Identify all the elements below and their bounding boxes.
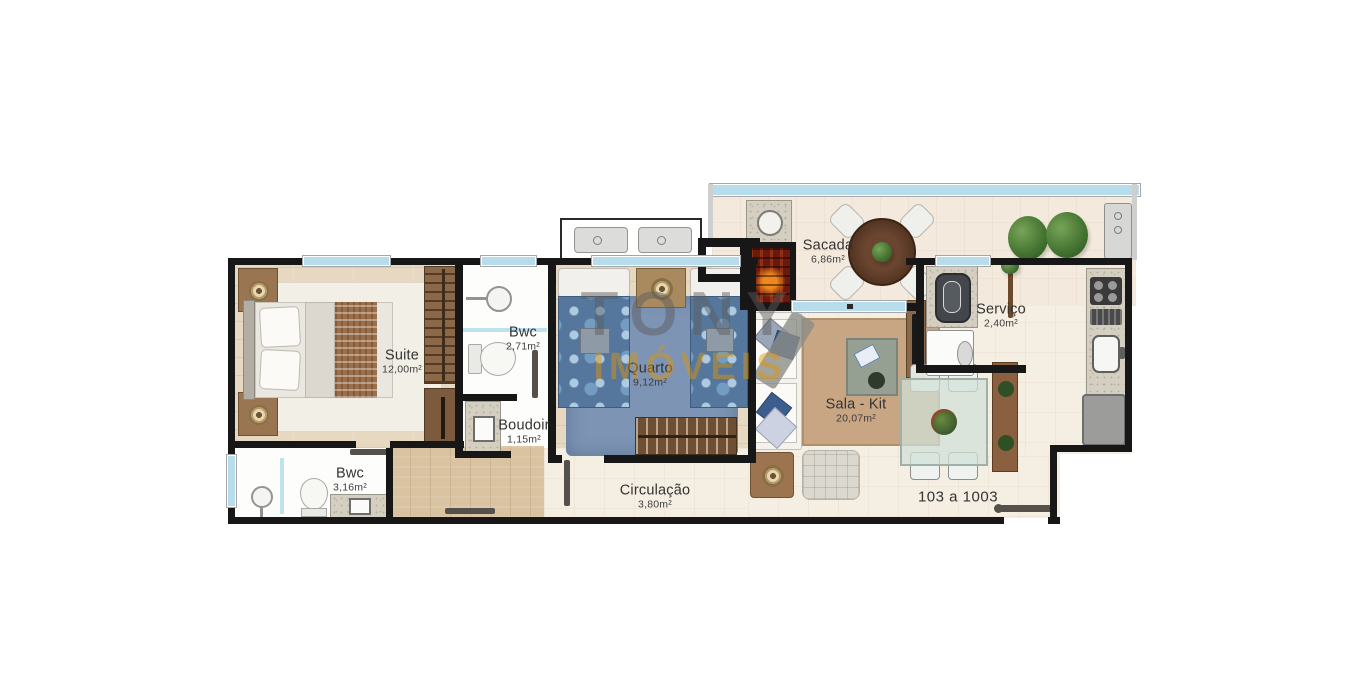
room-area: 3,16m² (333, 483, 367, 494)
ac-unit (638, 227, 692, 253)
pillow (558, 268, 630, 298)
wall (536, 258, 592, 265)
bed-cover (690, 296, 748, 408)
grill-tray-icon (1090, 309, 1122, 325)
ac-unit (1104, 203, 1132, 259)
wall (1125, 258, 1132, 452)
balcony-sink-basin-icon (757, 210, 783, 236)
bwc-suite-door (532, 350, 538, 398)
room-label-suite: Suite 12,00m² (382, 348, 422, 375)
room-label-servico: Serviço 2,40m² (976, 302, 1026, 329)
toilet-tank (301, 508, 327, 517)
balcony-railing (710, 184, 1140, 196)
wall (698, 238, 760, 247)
washer-door-icon (957, 341, 973, 367)
cooktop-icon (1090, 277, 1122, 305)
plant-icon (1008, 216, 1048, 260)
ac-unit (574, 227, 628, 253)
room-name: Quarto (627, 360, 673, 376)
wall (906, 258, 936, 265)
dresser-handle (441, 397, 445, 439)
room-label-boudoir: Boudoir 1,15m² (498, 418, 549, 445)
hall-door (445, 508, 495, 514)
ac-fan-icon (1114, 226, 1122, 234)
dining-set (900, 378, 988, 466)
kitchen-counter (1086, 268, 1126, 398)
window (303, 256, 390, 266)
wall (548, 455, 562, 463)
sofa (750, 312, 802, 450)
tub-basin (943, 281, 961, 313)
room-area: 1,15m² (498, 435, 549, 446)
side-table (750, 452, 794, 498)
centerpiece-icon (931, 409, 957, 435)
quarto-wardrobe (635, 417, 737, 455)
wardrobe-rod (442, 269, 445, 381)
rattan-tray-icon (651, 278, 673, 300)
room-name: Circulação (620, 482, 691, 498)
room-name: Serviço (976, 301, 1026, 317)
wall (228, 441, 356, 448)
wall (390, 441, 464, 448)
laundry-tub-icon (935, 273, 971, 323)
balcony-right-return (1132, 184, 1137, 260)
room-name: Bwc (509, 324, 537, 340)
bedside-dresser (636, 268, 686, 308)
room-name: Sacada (803, 237, 853, 253)
room-area: 12,00m² (382, 365, 422, 376)
room-area: 2,71m² (506, 342, 540, 353)
room-area: 2,40m² (976, 319, 1026, 330)
vanity-counter (330, 494, 388, 518)
round-dining-table-set (846, 216, 918, 288)
single-bed (558, 268, 630, 408)
ac-fan-icon (657, 236, 666, 245)
bowl-icon (868, 372, 885, 389)
balcony-left-return (708, 184, 713, 242)
shower-icon (251, 486, 273, 508)
bed-cushion (706, 328, 734, 352)
burner-icon (1094, 293, 1103, 302)
plant-icon (998, 435, 1014, 451)
double-bed (243, 300, 393, 400)
room-label-quarto: Quarto 9,12m² (627, 361, 673, 388)
wall (916, 262, 924, 372)
wall (1050, 445, 1057, 524)
room-label-sala-kit: Sala - Kit 20,07m² (826, 397, 887, 424)
wall (698, 274, 744, 282)
wall (390, 258, 481, 265)
wall (228, 517, 1004, 524)
kitchen-sink-icon (1092, 335, 1120, 373)
room-name: Sala - Kit (826, 396, 887, 412)
floor-plan: Suite 12,00m² Bwc 2,71m² Boudoir 1,15m² … (0, 0, 1366, 691)
wall (752, 303, 792, 311)
window (481, 256, 536, 266)
room-label-circulacao: Circulação 3,80m² (620, 483, 691, 510)
shower-icon (486, 286, 512, 312)
sideboard (992, 362, 1018, 472)
wall (386, 448, 393, 517)
pillow (259, 306, 301, 348)
shower-arm (466, 297, 488, 300)
entry-door (1000, 505, 1054, 512)
ac-fan-icon (593, 236, 602, 245)
plant-icon (1046, 212, 1088, 258)
laundry-counter (926, 266, 978, 328)
coffee-table (846, 338, 898, 396)
window (592, 256, 740, 266)
bed-runner (335, 302, 377, 398)
room-label-bwc-social: Bwc 3,16m² (333, 466, 367, 493)
unit-range-label: 103 a 1003 (918, 489, 998, 506)
bwc-social-door (350, 449, 390, 455)
table-lamp-icon (249, 281, 269, 301)
burner-icon (1108, 281, 1117, 290)
wall (455, 262, 463, 402)
room-area: 9,12m² (627, 378, 673, 389)
wall (455, 394, 517, 401)
wall (228, 258, 304, 265)
table-lamp-icon (762, 465, 784, 487)
headboard (243, 300, 255, 400)
wall (455, 396, 463, 458)
duvet-fold (305, 302, 335, 398)
wall (455, 451, 511, 458)
window (227, 455, 236, 507)
burner-icon (1094, 281, 1103, 290)
table-plant-icon (872, 242, 892, 262)
burner-icon (1108, 293, 1117, 302)
boudoir-counter (465, 401, 501, 455)
room-name: Bwc (336, 465, 364, 481)
table-lamp-icon (249, 405, 269, 425)
pillow (259, 349, 301, 391)
room-area: 20,07m² (826, 414, 887, 425)
wardrobe-rod (638, 435, 736, 438)
quarto-door (564, 460, 570, 506)
barbecue-grill-icon (750, 248, 790, 304)
boudoir-sink-icon (473, 416, 495, 442)
wall (604, 455, 756, 463)
room-label-bwc-suite: Bwc 2,71m² (506, 325, 540, 352)
vanity-sink-icon (349, 498, 371, 515)
shower-glass-partition (280, 458, 284, 514)
sliding-door (792, 301, 906, 312)
refrigerator (1082, 394, 1126, 446)
book-icon (854, 344, 881, 368)
wall (990, 258, 1132, 265)
room-name: Suite (385, 347, 419, 363)
pouf (802, 450, 860, 500)
ac-fan-icon (1114, 212, 1122, 220)
room-area: 6,86m² (803, 255, 853, 266)
bed-cushion (580, 328, 610, 354)
plant-icon (998, 381, 1014, 397)
wall (916, 365, 1026, 373)
sliding-door-latch (847, 304, 853, 309)
wall (1050, 445, 1132, 452)
room-label-sacada: Sacada 6,86m² (803, 238, 853, 265)
room-name: Boudoir (498, 417, 549, 433)
room-area: 3,80m² (620, 500, 691, 511)
window (936, 256, 990, 266)
wall (740, 247, 752, 310)
